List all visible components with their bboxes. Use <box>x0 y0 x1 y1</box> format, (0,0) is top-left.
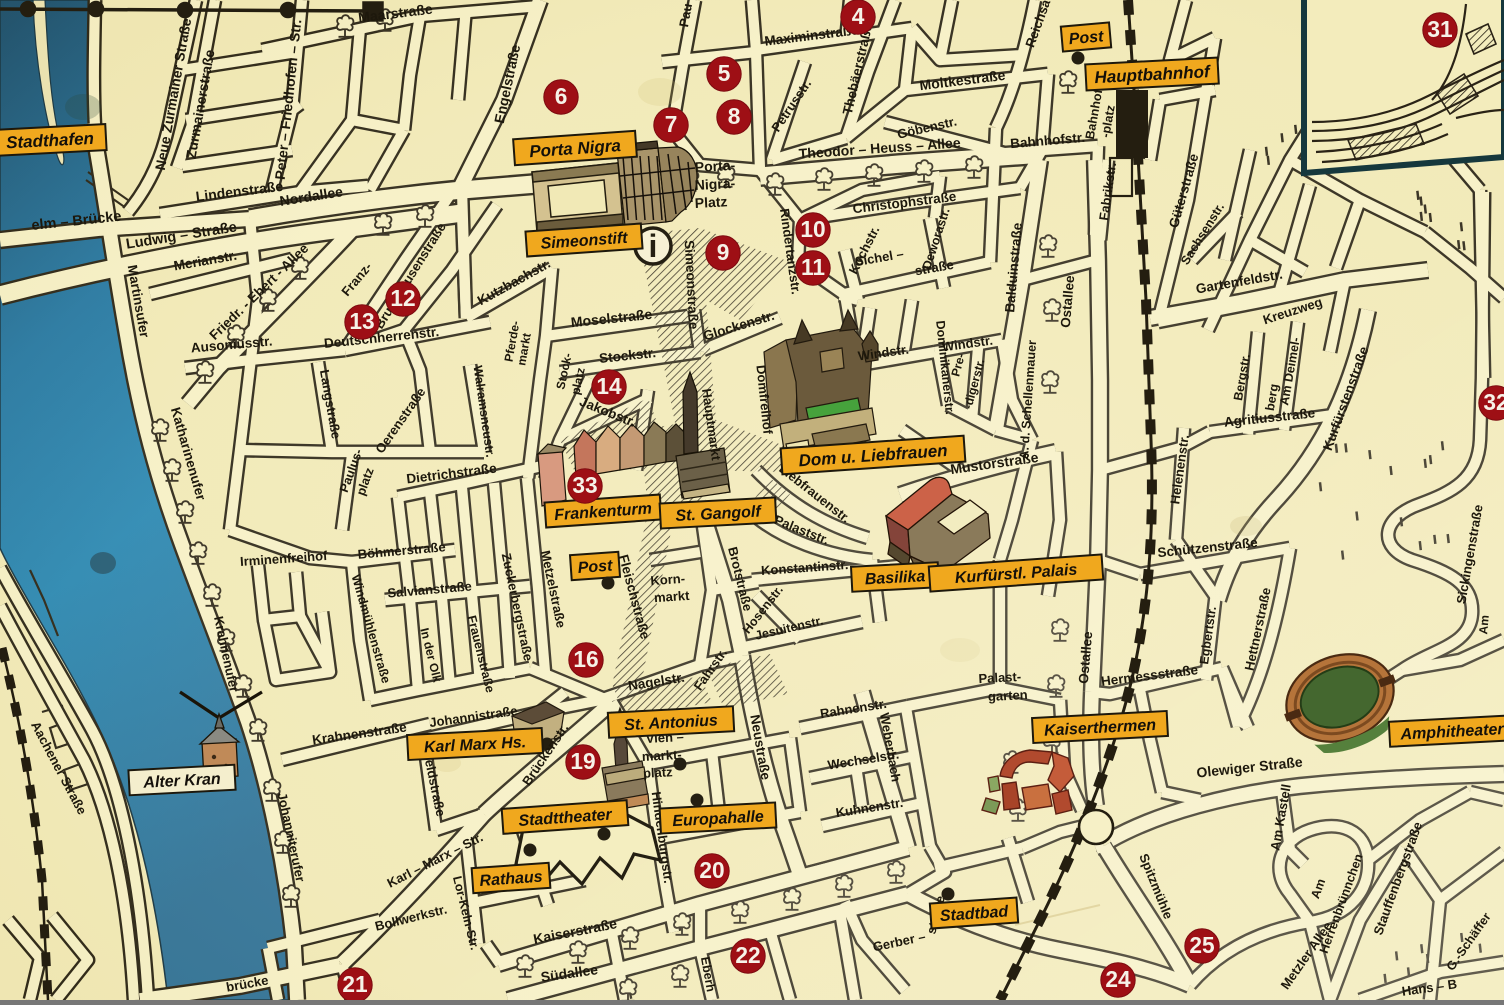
svg-text:Post: Post <box>577 558 613 577</box>
svg-text:platz: platz <box>643 764 674 781</box>
svg-text:Nigra-: Nigra- <box>694 175 736 193</box>
svg-text:5: 5 <box>718 60 731 86</box>
svg-text:6: 6 <box>555 83 568 109</box>
svg-text:19: 19 <box>570 748 595 774</box>
svg-text:Platz: Platz <box>694 193 727 211</box>
svg-text:13: 13 <box>349 308 374 334</box>
svg-text:10: 10 <box>800 216 825 242</box>
svg-text:Porta-: Porta- <box>694 157 736 175</box>
svg-text:garten: garten <box>988 687 1029 704</box>
svg-text:33: 33 <box>572 472 597 498</box>
svg-text:16: 16 <box>573 646 598 672</box>
svg-text:Post: Post <box>1068 28 1105 48</box>
svg-text:4: 4 <box>852 3 865 29</box>
svg-text:Am: Am <box>1476 614 1492 634</box>
svg-text:14: 14 <box>596 373 622 399</box>
svg-text:7: 7 <box>665 111 678 137</box>
svg-text:20: 20 <box>699 857 724 883</box>
svg-text:8: 8 <box>728 103 741 129</box>
svg-text:11: 11 <box>801 254 825 280</box>
svg-text:22: 22 <box>735 942 760 968</box>
svg-text:25: 25 <box>1189 932 1214 958</box>
svg-text:9: 9 <box>717 239 730 265</box>
svg-text:Korn-: Korn- <box>650 571 686 588</box>
svg-text:32: 32 <box>1483 389 1504 415</box>
svg-text:12: 12 <box>390 285 415 311</box>
svg-text:Basilika: Basilika <box>864 568 925 588</box>
svg-text:21: 21 <box>342 971 367 997</box>
svg-text:i: i <box>649 228 658 264</box>
svg-text:markt: markt <box>653 588 690 605</box>
svg-text:31: 31 <box>1427 16 1452 42</box>
svg-text:Palast-: Palast- <box>978 669 1021 686</box>
svg-text:24: 24 <box>1105 966 1131 992</box>
